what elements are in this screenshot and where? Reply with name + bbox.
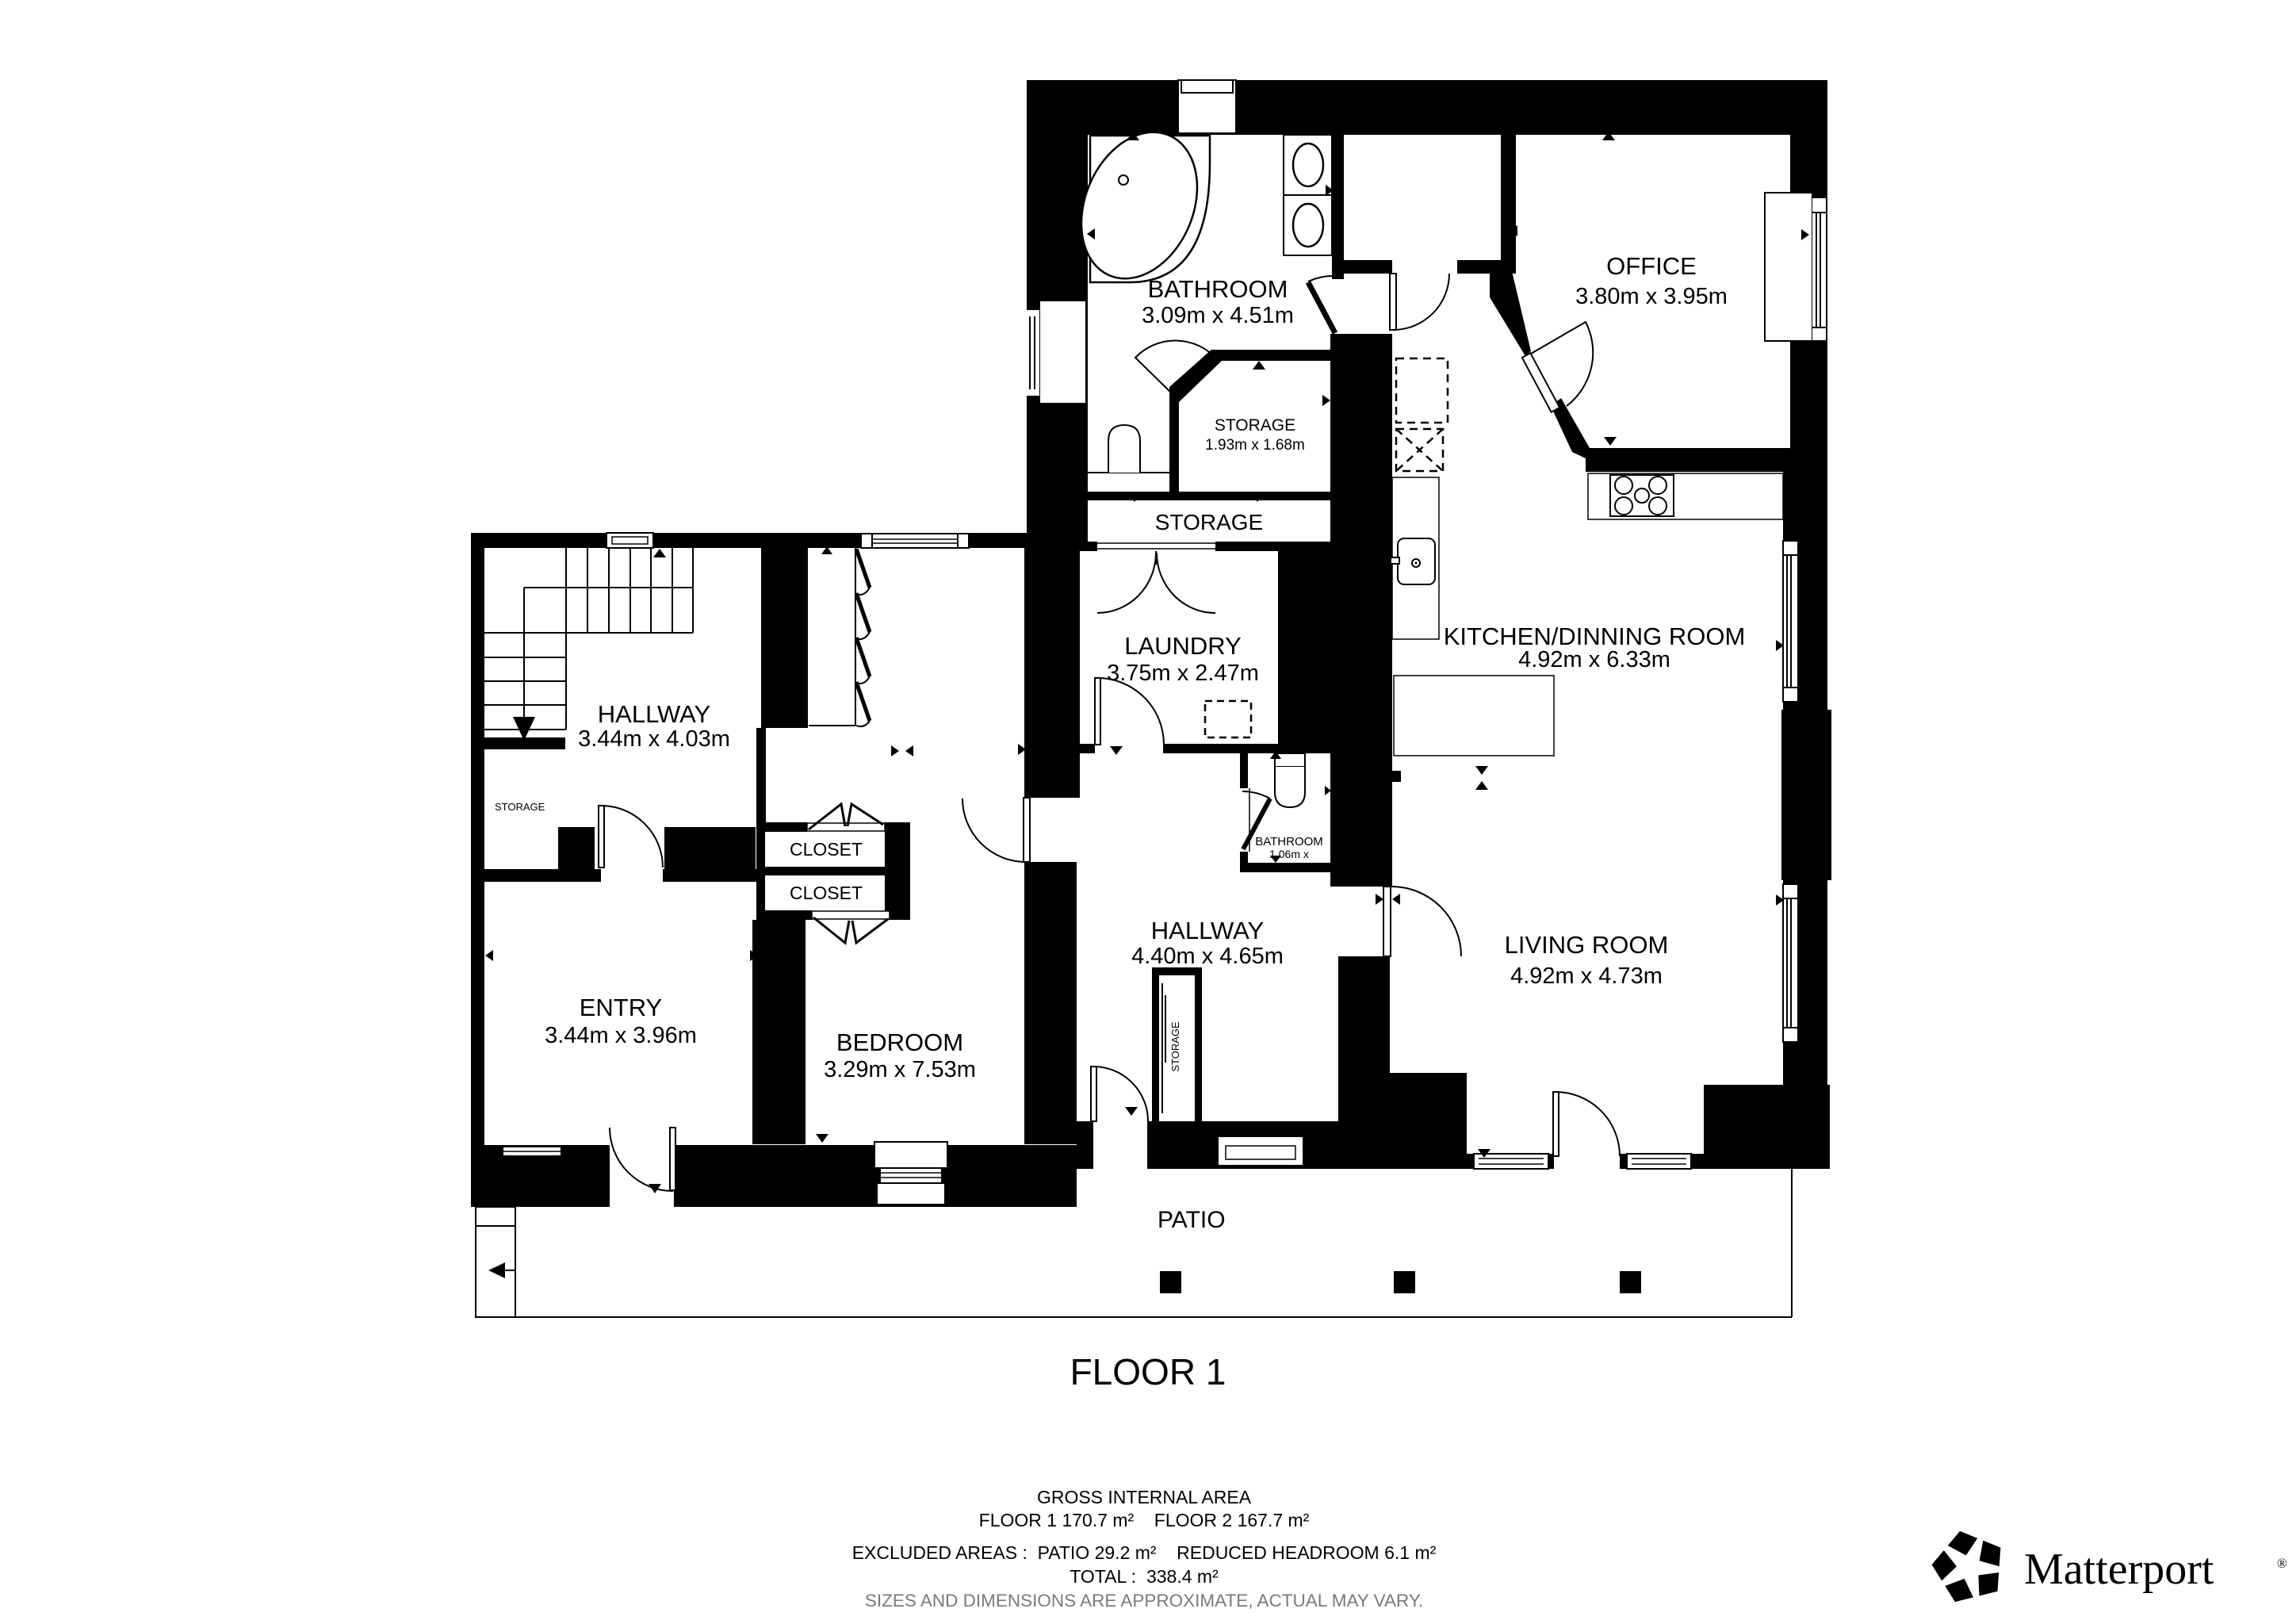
- svg-text:BATHROOM: BATHROOM: [1255, 835, 1323, 848]
- svg-text:PATIO: PATIO: [1158, 1207, 1226, 1233]
- svg-text:FLOOR 1: FLOOR 1: [1070, 1351, 1226, 1392]
- svg-text:3.44m x 4.03m: 3.44m x 4.03m: [578, 726, 730, 752]
- svg-text:LIVING ROOM: LIVING ROOM: [1505, 931, 1669, 959]
- svg-text:1.93m x 1.68m: 1.93m x 1.68m: [1205, 437, 1305, 454]
- svg-text:BATHROOM: BATHROOM: [1148, 275, 1288, 303]
- svg-text:3.75m x 2.47m: 3.75m x 2.47m: [1107, 661, 1259, 686]
- svg-text:3.80m x 3.95m: 3.80m x 3.95m: [1575, 284, 1728, 309]
- svg-text:ENTRY: ENTRY: [580, 994, 663, 1021]
- svg-text:STORAGE: STORAGE: [1215, 416, 1295, 435]
- svg-text:STORAGE: STORAGE: [1169, 1021, 1181, 1072]
- svg-text:Matterport: Matterport: [2024, 1545, 2214, 1594]
- svg-text:OFFICE: OFFICE: [1606, 252, 1697, 280]
- svg-text:4.40m x 4.65m: 4.40m x 4.65m: [1131, 944, 1284, 969]
- svg-text:4.92m x 4.73m: 4.92m x 4.73m: [1510, 963, 1663, 989]
- svg-text:HALLWAY: HALLWAY: [1151, 917, 1264, 944]
- svg-text:3.44m x 3.96m: 3.44m x 3.96m: [545, 1023, 697, 1048]
- svg-text:4.92m x 6.33m: 4.92m x 6.33m: [1518, 647, 1670, 672]
- svg-text:CLOSET: CLOSET: [790, 839, 863, 860]
- svg-text:BEDROOM: BEDROOM: [836, 1028, 963, 1056]
- svg-text:3.09m x 4.51m: 3.09m x 4.51m: [1142, 303, 1294, 328]
- svg-text:GROSS INTERNAL AREA: GROSS INTERNAL AREA: [1037, 1487, 1252, 1507]
- svg-text:SIZES AND DIMENSIONS ARE APPRO: SIZES AND DIMENSIONS ARE APPROXIMATE, AC…: [865, 1591, 1423, 1611]
- svg-text:KITCHEN/DINNING ROOM: KITCHEN/DINNING ROOM: [1444, 622, 1746, 650]
- svg-text:EXCLUDED AREAS : PATIO 29.2 m: EXCLUDED AREAS : PATIO 29.2 m² REDUCED H…: [852, 1542, 1437, 1563]
- svg-text:FLOOR 1 170.7 m² FLOOR 2 16: FLOOR 1 170.7 m² FLOOR 2 167.7 m²: [979, 1510, 1310, 1530]
- svg-text:HALLWAY: HALLWAY: [598, 700, 710, 728]
- svg-text:STORAGE: STORAGE: [1155, 510, 1263, 534]
- svg-text:TOTAL : 338.4 m²: TOTAL : 338.4 m²: [1070, 1566, 1219, 1587]
- svg-text:®: ®: [2277, 1556, 2287, 1571]
- svg-text:STORAGE: STORAGE: [495, 801, 545, 813]
- svg-text:LAUNDRY: LAUNDRY: [1124, 632, 1242, 660]
- svg-text:3.29m x 7.53m: 3.29m x 7.53m: [824, 1057, 976, 1082]
- svg-text:CLOSET: CLOSET: [790, 883, 863, 903]
